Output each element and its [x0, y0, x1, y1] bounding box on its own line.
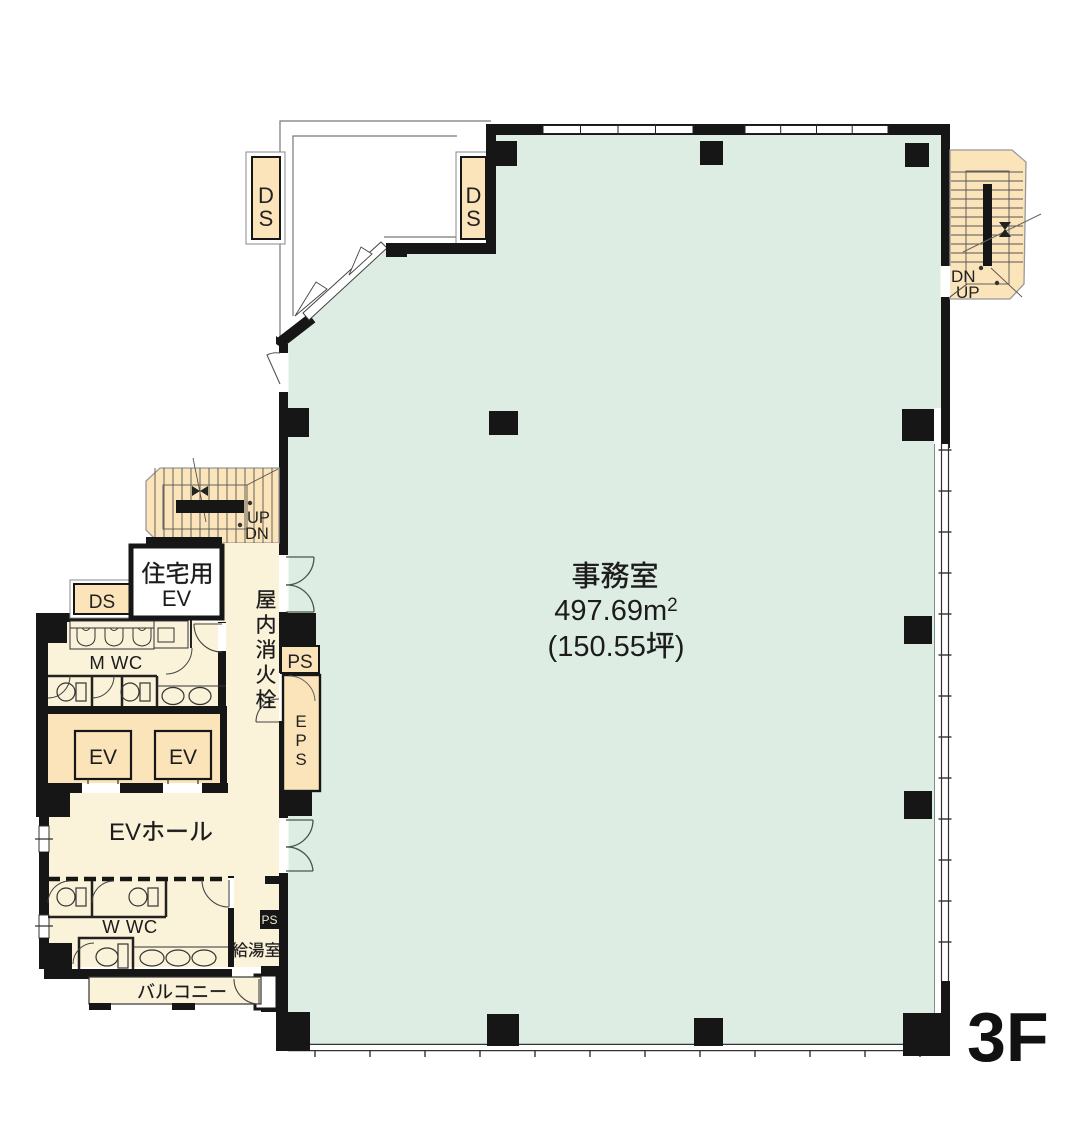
svg-text:EV: EV	[89, 746, 117, 769]
svg-text:497.69m2: 497.69m2	[554, 595, 677, 627]
svg-text:DS: DS	[89, 592, 115, 613]
svg-text:PS: PS	[287, 652, 312, 673]
svg-text:D: D	[466, 183, 482, 208]
svg-text:EV: EV	[109, 819, 141, 846]
svg-text:P: P	[295, 731, 306, 750]
svg-text:UP: UP	[956, 283, 980, 302]
svg-text:3F: 3F	[967, 998, 1049, 1076]
svg-text:150.55: 150.55	[557, 631, 646, 663]
svg-text:M WC: M WC	[89, 652, 142, 673]
svg-text:(: (	[548, 631, 558, 663]
svg-text:DN: DN	[245, 525, 269, 543]
svg-text:EV: EV	[169, 746, 197, 769]
svg-text:E: E	[295, 712, 306, 731]
svg-text:EV: EV	[162, 586, 192, 611]
svg-text:): )	[675, 631, 685, 663]
svg-text:S: S	[259, 206, 274, 231]
svg-text:PS: PS	[261, 913, 277, 927]
svg-text:W WC: W WC	[102, 916, 157, 937]
svg-text:D: D	[258, 183, 274, 208]
svg-text:S: S	[466, 206, 481, 231]
svg-text:S: S	[295, 750, 306, 769]
